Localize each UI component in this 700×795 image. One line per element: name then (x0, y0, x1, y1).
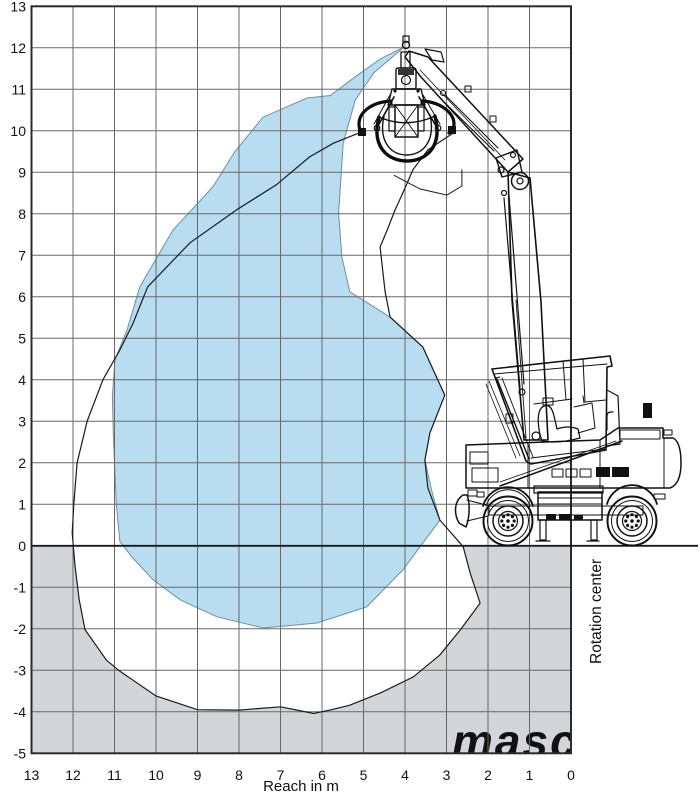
exhaust-stack (643, 403, 652, 418)
y-tick-label: -5 (14, 745, 27, 761)
y-tick-label: 7 (18, 247, 26, 263)
operator-seat (538, 405, 580, 442)
y-tick-label: 11 (11, 81, 26, 97)
y-tick-label: -1 (14, 579, 27, 595)
x-tick-label: 2 (484, 767, 492, 783)
y-tick-label: -2 (14, 621, 27, 637)
x-tick-label: 9 (194, 767, 202, 783)
watermark-text: masc (452, 715, 578, 767)
rotation-center-label: Rotation center (588, 559, 605, 664)
upper-body (466, 403, 681, 488)
boom-cylinder (504, 196, 524, 388)
x-tick-label: 10 (148, 767, 164, 783)
y-tick-label: 10 (10, 123, 26, 139)
dozer-blade (456, 490, 490, 527)
x-tick-label: 4 (401, 767, 409, 783)
y-tick-label: 2 (18, 455, 26, 471)
y-tick-label: 13 (10, 0, 26, 14)
working-range-diagram: masc (0, 0, 700, 795)
y-tick-label: 5 (18, 330, 26, 346)
y-tick-label: -3 (14, 662, 27, 678)
y-tick-label: 1 (18, 496, 26, 512)
chart-canvas: masc (0, 0, 700, 795)
x-tick-label: 12 (65, 767, 81, 783)
x-tick-label: 3 (443, 767, 451, 783)
x-tick-label: 11 (107, 767, 122, 783)
hood-handle (607, 412, 613, 430)
y-tick-label: 9 (18, 164, 26, 180)
x-tick-label: 8 (235, 767, 243, 783)
y-tick-label: 6 (18, 289, 26, 305)
x-tick-label: 13 (24, 767, 40, 783)
y-tick-label: 12 (10, 40, 26, 56)
y-tick-label: 3 (18, 413, 26, 429)
y-tick-label: -4 (14, 704, 27, 720)
x-axis-title: Reach in m (263, 778, 339, 795)
rear-wheel (608, 497, 657, 546)
mudflap-bracket (654, 494, 665, 499)
x-tick-label: 5 (360, 767, 368, 783)
y-tick-label: 8 (18, 206, 26, 222)
x-tick-label: 0 (567, 767, 575, 783)
x-tick-label: 1 (526, 767, 534, 783)
y-tick-label: 0 (18, 538, 26, 554)
boom (502, 172, 549, 440)
y-tick-label: 4 (18, 372, 26, 388)
watermark-layer: masc (452, 715, 578, 767)
